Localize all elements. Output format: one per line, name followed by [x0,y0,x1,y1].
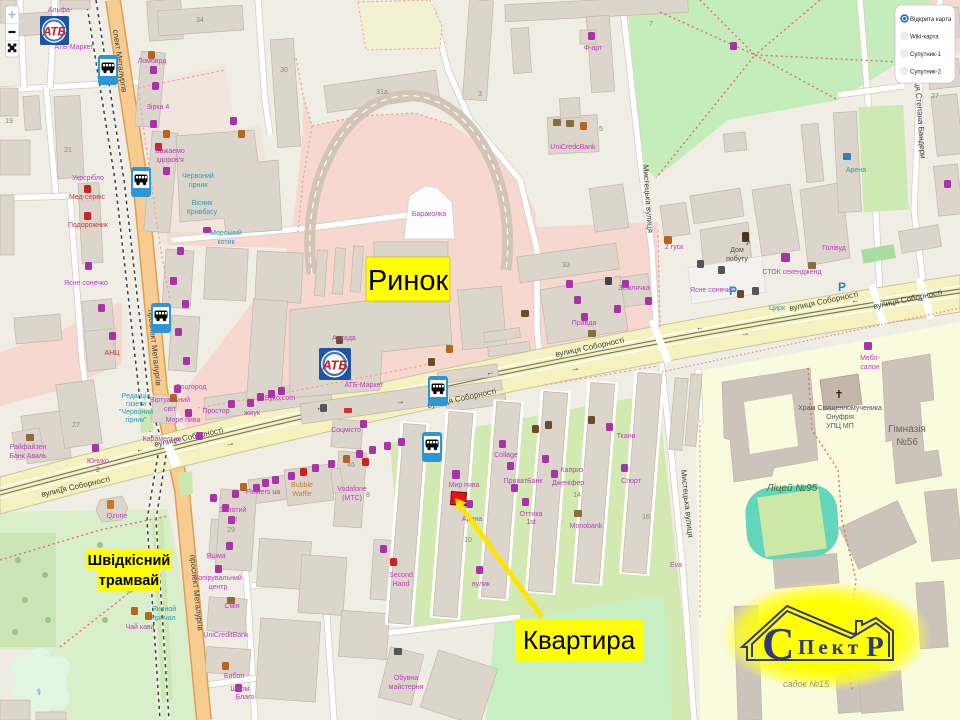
svg-text:№56: №56 [896,437,918,448]
svg-text:газети: газети [126,401,146,408]
svg-text:Банк Аваль: Банк Аваль [9,453,47,460]
svg-text:Райфайзен: Райфайзен [10,443,47,451]
svg-text:Wiki-карта: Wiki-карта [910,35,939,41]
svg-text:салон: салон [860,364,879,371]
svg-text:Віртуальний: Віртуальний [150,396,190,404]
svg-text:Collage: Collage [494,452,518,459]
svg-text:P: P [838,280,846,294]
svg-text:Яшма: Яшма [206,553,225,560]
svg-text:Спорт: Спорт [621,478,641,485]
svg-text:♪: ♪ [745,236,751,248]
svg-text:побуту: побуту [726,255,748,263]
svg-text:10: 10 [464,537,472,544]
svg-text:вулик: вулик [472,581,491,588]
svg-text:Альфа-: Альфа- [48,7,73,14]
svg-text:Waffle: Waffle [292,491,312,498]
svg-text:"Червоний: "Червоний [119,408,153,416]
svg-text:Простор: Простор [202,408,229,415]
svg-text:Цирк: Цирк [769,305,786,312]
svg-text:27: 27 [72,422,80,429]
svg-text:Vodafone: Vodafone [337,486,367,493]
svg-text:Соцгород: Соцгород [176,384,207,391]
svg-text:здоров'я: здоров'я [156,157,184,164]
svg-text:Дженіфер: Дженіфер [552,479,584,487]
svg-text:14: 14 [573,492,581,499]
svg-text:✝: ✝ [834,389,843,401]
svg-text:Супутник-2: Супутник-2 [910,70,942,76]
svg-text:АТБ: АТБ [42,25,67,39]
svg-text:Бараколка: Бараколка [412,211,446,218]
svg-text:Р: Р [866,631,884,663]
svg-text:Eva: Eva [670,562,682,569]
svg-text:UniCreditBank: UniCreditBank [203,632,249,639]
svg-text:(МТС): (МТС) [342,495,362,502]
svg-text:Hand: Hand [393,581,410,588]
svg-text:⚕: ⚕ [37,687,42,697]
svg-text:гірник": гірник" [125,416,147,424]
svg-text:Ринок: Ринок [368,265,449,297]
svg-text:Обувна: Обувна [394,674,418,682]
svg-text:UniCredcBank: UniCredcBank [550,144,596,151]
svg-text:Зірка 4: Зірка 4 [147,103,170,111]
svg-text:2 гуск: 2 гуск [665,244,684,251]
svg-text:жжук: жжук [244,410,261,417]
svg-text:Відкрита карта: Відкрита карта [910,17,952,23]
svg-text:Швідкісний: Швідкісний [88,553,171,569]
svg-text:трамвай: трамвай [99,573,159,589]
svg-text:Голівуд: Голівуд [822,244,846,252]
svg-text:Мир пива: Мир пива [449,482,480,489]
svg-text:Вісник: Вісник [192,199,214,207]
svg-text:Flowers ua: Flowers ua [246,489,280,496]
svg-text:Море пива: Море пива [166,417,201,424]
svg-text:Бибоп: Бибоп [224,672,244,680]
svg-text:5: 5 [599,126,603,133]
svg-text:СТОК секендженд: СТОК секендженд [762,269,821,276]
svg-text:Смія: Смія [224,602,239,610]
svg-text:34: 34 [196,17,204,24]
svg-text:Арена: Арена [846,167,866,174]
svg-text:Мебл-: Мебл- [860,354,881,362]
svg-text:7: 7 [649,21,653,28]
svg-text:АНЦ: АНЦ [105,350,121,357]
svg-text:УПЦ МП: УПЦ МП [826,423,853,430]
svg-text:30: 30 [280,67,288,74]
svg-text:майстерня: майстерня [389,683,424,691]
svg-text:33: 33 [562,262,570,269]
svg-text:Мед-сервіс: Мед-сервіс [69,193,106,201]
svg-text:гірник: гірник [189,181,209,189]
svg-text:→: → [915,293,926,304]
svg-text:Ткани: Ткани [617,433,636,440]
svg-text:світ: світ [164,405,177,413]
svg-text:садок №15: садок №15 [783,679,830,689]
svg-text:Бажаемо: Бажаемо [155,148,185,155]
svg-text:Юнико: Юнико [87,458,109,465]
svg-text:Укрсрібло: Укрсрібло [72,174,104,182]
svg-text:Чай кава: Чай кава [125,623,154,631]
svg-text:Гімназія: Гімназія [888,424,926,435]
svg-text:Редакція: Редакція [122,392,151,400]
svg-text:Яивной: Яивной [152,605,176,613]
svg-text:P: P [729,284,737,298]
svg-text:Вуко.com: Вуко.com [265,395,295,402]
svg-text:Соцмісто: Соцмісто [331,426,361,434]
svg-text:АТБ: АТБ [321,358,347,373]
svg-text:Храм Священномученика: Храм Священномученика [798,405,882,412]
svg-text:Землячка: Землячка [618,285,650,292]
svg-text:Ліцей №95: Ліцей №95 [766,483,818,494]
svg-text:Ясне сонечко: Ясне сонечко [690,287,734,294]
svg-text:ПриватБанк: ПриватБанк [504,478,544,485]
svg-text:Ясне сонечко: Ясне сонечко [64,280,108,287]
svg-text:Пект: Пект [798,635,862,659]
svg-text:АТБ-Маркет: АТБ-Маркет [54,44,94,51]
svg-text:21: 21 [64,147,72,154]
svg-text:вік: вік [229,515,238,523]
svg-text:Каприз: Каприз [561,467,584,474]
svg-text:Шарм: Шарм [230,686,249,693]
svg-text:←: ← [695,321,706,333]
svg-text:Дом: Дом [730,247,744,254]
svg-text:Ф-арт: Ф-арт [584,45,603,52]
svg-text:←: ← [850,294,861,305]
svg-text:19: 19 [5,118,13,125]
svg-text:Квартира: Квартира [523,625,636,655]
svg-text:3: 3 [478,91,482,98]
svg-text:31а: 31а [376,89,388,96]
svg-text:С: С [762,619,795,669]
svg-text:причал: причал [152,615,175,622]
svg-text:46: 46 [347,462,355,469]
svg-text:Онуфрія: Онуфрія [826,413,854,421]
svg-text:→: → [740,327,751,339]
svg-text:Копірувальний: Копірувальний [194,574,242,582]
svg-text:Аркада: Аркада [332,335,356,342]
svg-text:2: 2 [96,467,100,474]
svg-text:АТБ-Маркет: АТБ-Маркет [344,382,384,389]
svg-text:27: 27 [931,93,939,100]
svg-text:Bubble: Bubble [291,482,313,489]
svg-text:котик: котик [217,239,235,246]
svg-text:Благо: Благо [236,694,255,701]
svg-text:Monobank: Monobank [570,523,603,530]
svg-text:Подорожник: Подорожник [68,222,109,229]
svg-text:1st: 1st [526,519,535,526]
svg-text:Qzone: Qzone [107,513,128,520]
svg-text:Second: Second [389,572,413,579]
svg-text:Ломбард: Ломбард [138,57,167,65]
svg-text:Правда: Правда [572,320,597,327]
svg-text:Золотий: Золотий [220,506,247,514]
svg-text:Карамелька: Карамелька [142,436,181,443]
svg-text:16: 16 [642,514,650,521]
svg-text:Червоний: Червоний [182,172,214,180]
svg-text:29: 29 [227,527,235,534]
svg-text:Супутник-1: Супутник-1 [910,52,942,58]
svg-text:центр: центр [209,584,228,591]
svg-text:Кривбасу: Кривбасу [187,208,218,216]
svg-text:Морський: Морський [210,229,242,237]
svg-text:8: 8 [366,492,370,499]
svg-text:Оттика: Оттика [520,511,543,518]
